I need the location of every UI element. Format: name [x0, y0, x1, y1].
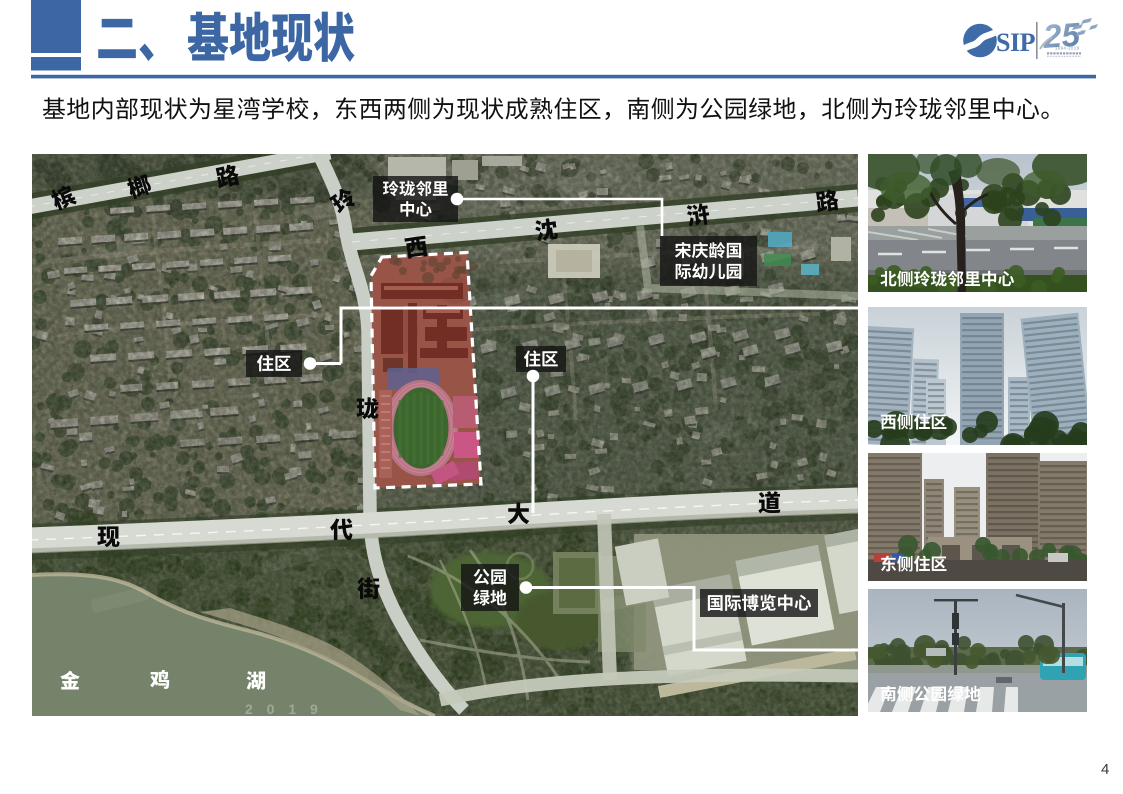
- svg-text:SIP: SIP: [996, 28, 1036, 57]
- svg-text:1994-2019: 1994-2019: [1055, 46, 1080, 51]
- svg-text:th: th: [1081, 29, 1085, 34]
- svg-text:2 0 1 9: 2 0 1 9: [245, 701, 323, 717]
- svg-text:4: 4: [1101, 761, 1109, 778]
